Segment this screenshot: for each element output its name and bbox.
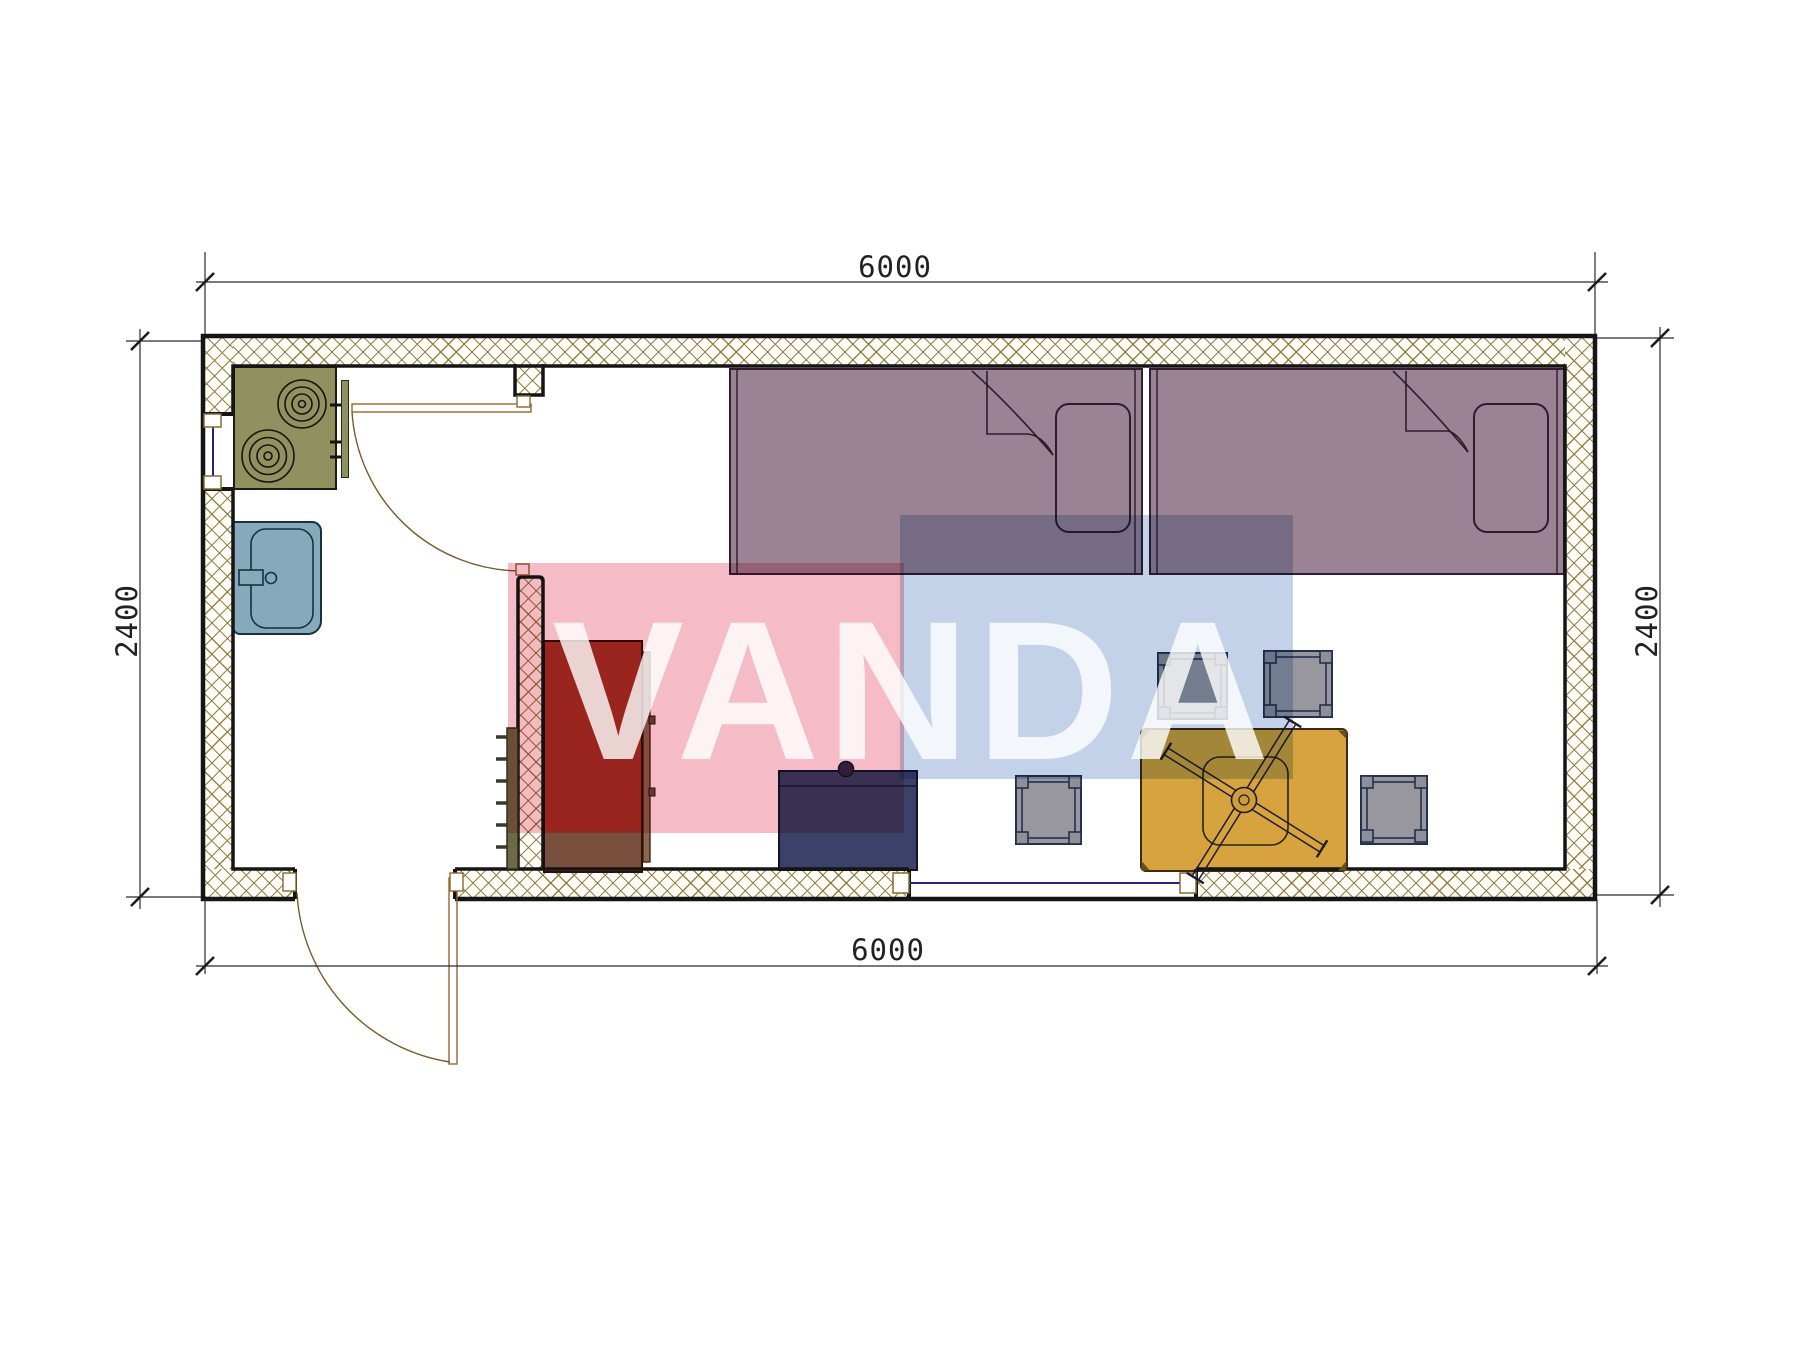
window-left (204, 414, 221, 489)
left-wall-upper (205, 338, 233, 414)
wall-stub (515, 366, 543, 395)
stove (233, 366, 337, 490)
bottom-wall-left (205, 869, 295, 897)
wardrobe-base (545, 831, 641, 871)
sink (232, 521, 322, 635)
right-wall (1565, 338, 1593, 897)
left-wall-lower (205, 489, 233, 897)
bottom-wall-right (1196, 869, 1593, 897)
door-2 (283, 873, 463, 1064)
stool-4 (1360, 775, 1428, 845)
dimension-bottom: 6000 (813, 933, 963, 967)
dimension-left: 2400 (110, 561, 144, 681)
window-bottom (893, 873, 1196, 893)
dimension-right: 2400 (1630, 561, 1664, 681)
door-panel-bar (341, 380, 349, 478)
door-1 (352, 396, 531, 575)
watermark-text: VANDA (552, 592, 1276, 790)
dimension-top: 6000 (820, 250, 970, 284)
bottom-wall-mid (455, 869, 909, 897)
top-wall (205, 338, 1593, 366)
floor-plan-canvas: VANDA 6000 6000 2400 2400 (0, 0, 1800, 1350)
